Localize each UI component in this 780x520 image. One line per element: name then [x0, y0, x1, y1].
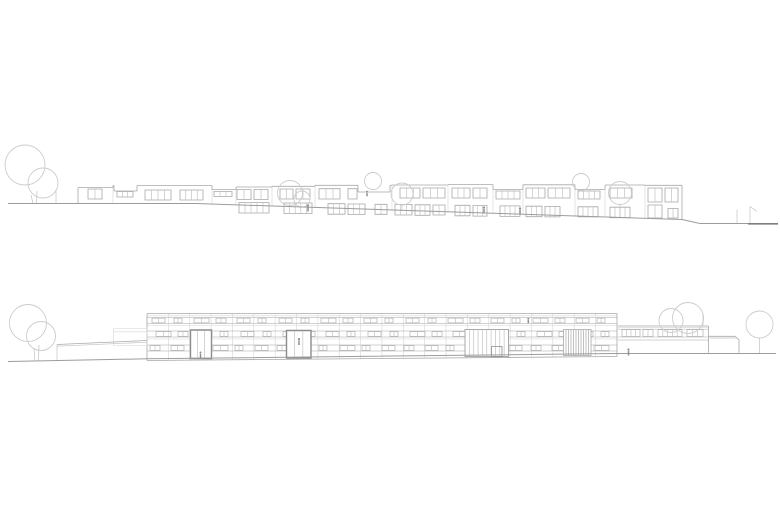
window	[526, 188, 545, 198]
garden-wall	[750, 207, 757, 212]
tree-canopy	[278, 181, 303, 206]
person-figure	[307, 205, 309, 212]
tree	[365, 173, 382, 190]
boundary-wall-bevel	[735, 336, 739, 340]
figure-head	[298, 338, 300, 340]
ground-line	[8, 354, 776, 362]
window	[319, 189, 340, 199]
tree-trunk	[37, 191, 38, 204]
person-figure	[627, 349, 629, 356]
window	[548, 188, 570, 198]
tree-trunk	[31, 195, 33, 204]
window	[117, 192, 133, 198]
person-figure	[483, 207, 485, 214]
tree	[391, 183, 413, 211]
elevations-drawing	[0, 0, 780, 520]
figure-head	[307, 205, 309, 207]
window	[455, 205, 470, 216]
figure-head	[366, 191, 368, 193]
tree-trunk	[39, 345, 40, 361]
tree	[609, 182, 632, 218]
window	[239, 203, 269, 214]
tree	[10, 305, 56, 362]
upper-elevation	[5, 145, 778, 224]
louvre-screen	[564, 330, 592, 356]
tree-canopy	[365, 173, 382, 190]
window	[214, 192, 232, 197]
figure-head	[627, 349, 629, 351]
tree-canopy	[10, 305, 47, 342]
figure-head	[527, 318, 529, 320]
lower-elevation	[8, 303, 776, 362]
tree-canopy	[28, 168, 58, 198]
tree-canopy	[5, 145, 45, 185]
tree-trunk	[34, 349, 35, 361]
elevation-sheet	[0, 0, 780, 520]
figure-head	[199, 352, 201, 354]
window	[610, 188, 632, 198]
tree	[278, 181, 311, 208]
person-figure	[519, 208, 521, 215]
figure-head	[483, 207, 485, 209]
window	[452, 188, 470, 198]
person-figure	[366, 191, 368, 197]
tree	[5, 145, 58, 204]
person-figure	[527, 318, 529, 324]
tree	[746, 311, 773, 353]
window	[400, 188, 420, 198]
window	[328, 204, 345, 215]
tree-canopy	[573, 174, 590, 191]
tree-canopy	[746, 311, 773, 338]
tree-canopy	[391, 183, 413, 205]
window	[415, 205, 430, 216]
person-figure	[199, 352, 201, 359]
window	[348, 189, 357, 199]
tree	[573, 174, 590, 191]
ground-line	[8, 204, 756, 224]
window	[423, 188, 445, 198]
figure-head	[519, 208, 521, 210]
